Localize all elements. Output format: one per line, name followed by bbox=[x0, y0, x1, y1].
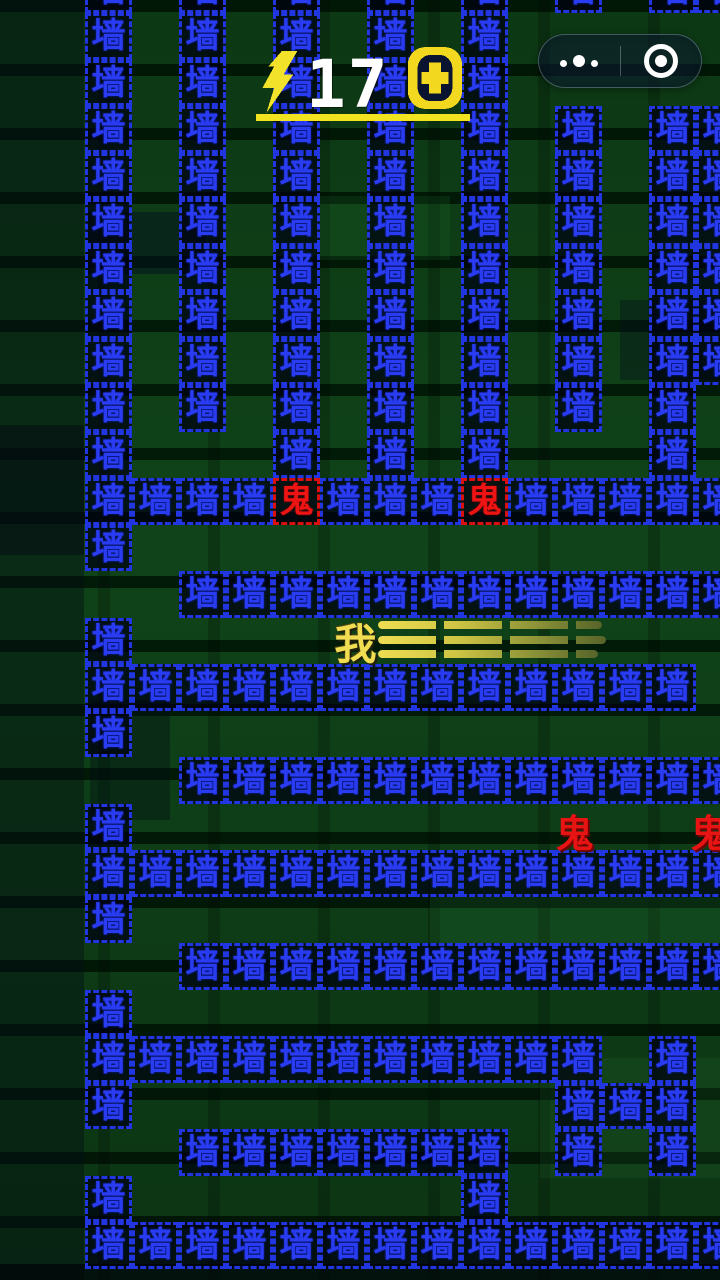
wall-cell: 墙 bbox=[367, 478, 414, 525]
wall-cell: 墙 bbox=[508, 478, 555, 525]
wall-cell: 墙 bbox=[85, 432, 132, 479]
wall-cell: 墙 bbox=[179, 60, 226, 107]
wall-cell: 墙 bbox=[602, 1222, 649, 1269]
wall-cell: 墙 bbox=[555, 0, 602, 13]
wall-cell: 墙 bbox=[273, 1036, 320, 1083]
menu-button[interactable] bbox=[539, 35, 620, 87]
wall-cell: 墙 bbox=[461, 199, 508, 246]
wall-cell: 墙 bbox=[414, 571, 461, 618]
wall-cell: 墙 bbox=[367, 850, 414, 897]
wall-cell: 墙 bbox=[696, 0, 720, 13]
wall-cell: 墙 bbox=[555, 246, 602, 293]
wall-cell: 墙 bbox=[85, 990, 132, 1037]
wall-cell: 墙 bbox=[320, 1129, 367, 1176]
wall-cell: 墙 bbox=[367, 153, 414, 200]
wall-cell: 墙 bbox=[461, 571, 508, 618]
wall-cell: 墙 bbox=[85, 339, 132, 386]
wall-cell: 墙 bbox=[367, 943, 414, 990]
wall-cell: 墙 bbox=[555, 1222, 602, 1269]
wall-cell: 墙 bbox=[273, 385, 320, 432]
wall-cell: 墙 bbox=[273, 571, 320, 618]
wall-cell: 墙 bbox=[85, 1036, 132, 1083]
wall-cell: 墙 bbox=[649, 1083, 696, 1130]
wall-cell: 墙 bbox=[367, 339, 414, 386]
wall-cell: 墙 bbox=[414, 478, 461, 525]
wall-cell: 墙 bbox=[179, 339, 226, 386]
wall-cell: 墙 bbox=[508, 850, 555, 897]
target-circle-icon bbox=[644, 44, 678, 78]
wall-cell: 墙 bbox=[461, 60, 508, 107]
wall-cell: 墙 bbox=[555, 199, 602, 246]
wall-cell: 墙 bbox=[414, 1129, 461, 1176]
wall-cell: 墙 bbox=[602, 478, 649, 525]
wall-cell: 墙 bbox=[226, 757, 273, 804]
wall-cell: 墙 bbox=[649, 0, 696, 13]
wall-cell: 墙 bbox=[273, 850, 320, 897]
wall-cell: 墙 bbox=[132, 1222, 179, 1269]
wall-cell: 墙 bbox=[696, 153, 720, 200]
wall-cell: 墙 bbox=[555, 153, 602, 200]
wall-cell: 墙 bbox=[555, 943, 602, 990]
coin-plus-icon bbox=[406, 45, 464, 111]
wall-cell: 墙 bbox=[649, 432, 696, 479]
wall-cell: 墙 bbox=[414, 757, 461, 804]
wall-cell: 墙 bbox=[85, 618, 132, 665]
wall-cell: 墙 bbox=[85, 60, 132, 107]
wall-cell: 墙 bbox=[226, 478, 273, 525]
wall-cell: 墙 bbox=[273, 943, 320, 990]
wall-cell: 墙 bbox=[649, 106, 696, 153]
wall-cell: 墙 bbox=[85, 13, 132, 60]
wall-cell: 墙 bbox=[273, 339, 320, 386]
wall-cell: 墙 bbox=[461, 106, 508, 153]
wall-cell: 墙 bbox=[85, 525, 132, 572]
wall-cell: 墙 bbox=[696, 339, 720, 386]
wall-cell: 墙 bbox=[85, 664, 132, 711]
speed-dash-line bbox=[378, 636, 606, 644]
wall-cell: 墙 bbox=[649, 478, 696, 525]
wall-cell: 墙 bbox=[696, 757, 720, 804]
wall-cell: 墙 bbox=[649, 1222, 696, 1269]
wall-cell: 墙 bbox=[461, 246, 508, 293]
wall-cell: 墙 bbox=[649, 339, 696, 386]
wall-cell: 墙 bbox=[508, 571, 555, 618]
wall-cell: 墙 bbox=[555, 1129, 602, 1176]
wall-cell: 墙 bbox=[461, 664, 508, 711]
wall-cell: 墙 bbox=[649, 1036, 696, 1083]
wall-cell: 墙 bbox=[602, 571, 649, 618]
wall-cell: 墙 bbox=[367, 385, 414, 432]
wall-cell: 墙 bbox=[649, 1129, 696, 1176]
wall-cell: 墙 bbox=[273, 1129, 320, 1176]
wall-cell: 墙 bbox=[555, 1036, 602, 1083]
wall-cell: 墙 bbox=[273, 246, 320, 293]
ghost: 鬼 bbox=[686, 803, 720, 858]
wall-cell: 墙 bbox=[367, 0, 414, 13]
wall-cell: 墙 bbox=[179, 13, 226, 60]
wall-cell: 墙 bbox=[602, 943, 649, 990]
speed-dash-line bbox=[378, 650, 598, 658]
wall-cell: 墙 bbox=[179, 943, 226, 990]
lightning-icon bbox=[256, 51, 300, 113]
wall-cell: 墙 bbox=[602, 1083, 649, 1130]
wall-cell: 墙 bbox=[85, 385, 132, 432]
wall-cell: 墙 bbox=[179, 571, 226, 618]
wall-cell: 墙 bbox=[132, 1036, 179, 1083]
wall-cell: 墙 bbox=[649, 292, 696, 339]
wall-cell: 墙 bbox=[602, 850, 649, 897]
wall-cell: 墙 bbox=[85, 711, 132, 758]
wall-cell: 墙 bbox=[85, 292, 132, 339]
wall-cell: 墙 bbox=[320, 1222, 367, 1269]
wall-cell: 墙 bbox=[85, 153, 132, 200]
wall-cell: 墙 bbox=[179, 246, 226, 293]
wall-cell: 墙 bbox=[414, 1036, 461, 1083]
wall-cell: 墙 bbox=[602, 664, 649, 711]
mini-program-capsule bbox=[538, 34, 702, 88]
wall-cell: 墙 bbox=[555, 106, 602, 153]
ghost-wall-cell: 鬼 bbox=[461, 478, 508, 525]
wall-cell: 墙 bbox=[555, 292, 602, 339]
wall-cell: 墙 bbox=[461, 292, 508, 339]
wall-cell: 墙 bbox=[461, 13, 508, 60]
wall-cell: 墙 bbox=[508, 1036, 555, 1083]
wall-cell: 墙 bbox=[696, 246, 720, 293]
wall-cell: 墙 bbox=[179, 757, 226, 804]
wall-cell: 墙 bbox=[226, 943, 273, 990]
wall-cell: 墙 bbox=[696, 1222, 720, 1269]
wall-cell: 墙 bbox=[132, 850, 179, 897]
wall-cell: 墙 bbox=[555, 664, 602, 711]
wall-cell: 墙 bbox=[461, 1129, 508, 1176]
wall-cell: 墙 bbox=[273, 292, 320, 339]
wall-cell: 墙 bbox=[508, 1222, 555, 1269]
wall-cell: 墙 bbox=[85, 199, 132, 246]
wall-cell: 墙 bbox=[508, 943, 555, 990]
wall-cell: 墙 bbox=[273, 1222, 320, 1269]
wall-cell: 墙 bbox=[320, 757, 367, 804]
wall-cell: 墙 bbox=[461, 1176, 508, 1223]
score-underline bbox=[256, 114, 470, 121]
wall-cell: 墙 bbox=[179, 1129, 226, 1176]
wall-cell: 墙 bbox=[85, 1083, 132, 1130]
wall-cell: 墙 bbox=[649, 664, 696, 711]
wall-cell: 墙 bbox=[649, 943, 696, 990]
maze-field[interactable]: 墙墙墙墙墙墙墙墙墙墙墙墙墙墙墙墙墙墙墙墙墙墙墙墙墙墙墙墙墙墙墙墙墙墙墙墙墙墙墙墙… bbox=[0, 0, 720, 1280]
wall-cell: 墙 bbox=[273, 0, 320, 13]
wall-cell: 墙 bbox=[414, 664, 461, 711]
wall-cell: 墙 bbox=[602, 757, 649, 804]
wall-cell: 墙 bbox=[226, 1129, 273, 1176]
wall-cell: 墙 bbox=[461, 0, 508, 13]
wall-cell: 墙 bbox=[461, 432, 508, 479]
wall-cell: 墙 bbox=[461, 339, 508, 386]
score-value: 17 bbox=[306, 46, 410, 123]
wall-cell: 墙 bbox=[555, 339, 602, 386]
wall-cell: 墙 bbox=[461, 943, 508, 990]
wall-cell: 墙 bbox=[461, 757, 508, 804]
wall-cell: 墙 bbox=[179, 0, 226, 13]
wall-cell: 墙 bbox=[179, 385, 226, 432]
wall-cell: 墙 bbox=[367, 1129, 414, 1176]
wall-cell: 墙 bbox=[461, 385, 508, 432]
wall-cell: 墙 bbox=[414, 1222, 461, 1269]
wall-cell: 墙 bbox=[179, 850, 226, 897]
wall-cell: 墙 bbox=[273, 432, 320, 479]
wall-cell: 墙 bbox=[696, 199, 720, 246]
wall-cell: 墙 bbox=[461, 153, 508, 200]
wall-cell: 墙 bbox=[320, 943, 367, 990]
wall-cell: 墙 bbox=[461, 1222, 508, 1269]
wall-cell: 墙 bbox=[179, 1036, 226, 1083]
wall-cell: 墙 bbox=[226, 1036, 273, 1083]
wall-cell: 墙 bbox=[85, 1176, 132, 1223]
wall-cell: 墙 bbox=[367, 432, 414, 479]
wall-cell: 墙 bbox=[555, 1083, 602, 1130]
wall-cell: 墙 bbox=[696, 943, 720, 990]
wall-cell: 墙 bbox=[226, 571, 273, 618]
wall-cell: 墙 bbox=[179, 478, 226, 525]
wall-cell: 墙 bbox=[367, 246, 414, 293]
wall-cell: 墙 bbox=[555, 385, 602, 432]
wall-cell: 墙 bbox=[132, 478, 179, 525]
wall-cell: 墙 bbox=[85, 897, 132, 944]
wall-cell: 墙 bbox=[696, 292, 720, 339]
wall-cell: 墙 bbox=[649, 199, 696, 246]
wall-cell: 墙 bbox=[132, 664, 179, 711]
wall-cell: 墙 bbox=[179, 1222, 226, 1269]
wall-cell: 墙 bbox=[696, 478, 720, 525]
wall-cell: 墙 bbox=[273, 757, 320, 804]
wall-cell: 墙 bbox=[273, 664, 320, 711]
wall-cell: 墙 bbox=[555, 757, 602, 804]
wall-cell: 墙 bbox=[320, 850, 367, 897]
wall-cell: 墙 bbox=[649, 385, 696, 432]
wall-cell: 墙 bbox=[226, 664, 273, 711]
wall-cell: 墙 bbox=[85, 246, 132, 293]
wall-cell: 墙 bbox=[85, 804, 132, 851]
wall-cell: 墙 bbox=[696, 571, 720, 618]
wall-cell: 墙 bbox=[367, 292, 414, 339]
wall-cell: 墙 bbox=[649, 153, 696, 200]
wall-cell: 墙 bbox=[226, 850, 273, 897]
wall-cell: 墙 bbox=[85, 0, 132, 13]
wall-cell: 墙 bbox=[226, 1222, 273, 1269]
player-character: 我 bbox=[332, 611, 379, 672]
wall-cell: 墙 bbox=[367, 757, 414, 804]
wall-cell: 墙 bbox=[179, 153, 226, 200]
wall-cell: 墙 bbox=[320, 478, 367, 525]
wall-cell: 墙 bbox=[508, 757, 555, 804]
wall-cell: 墙 bbox=[85, 106, 132, 153]
wall-cell: 墙 bbox=[179, 664, 226, 711]
wall-cell: 墙 bbox=[461, 850, 508, 897]
wall-cell: 墙 bbox=[179, 106, 226, 153]
wall-cell: 墙 bbox=[649, 757, 696, 804]
wall-cell: 墙 bbox=[367, 1222, 414, 1269]
wall-cell: 墙 bbox=[649, 246, 696, 293]
wall-cell: 墙 bbox=[85, 1222, 132, 1269]
wall-cell: 墙 bbox=[696, 106, 720, 153]
wall-cell: 墙 bbox=[179, 292, 226, 339]
wall-cell: 墙 bbox=[273, 199, 320, 246]
wall-cell: 墙 bbox=[555, 571, 602, 618]
wall-cell: 墙 bbox=[367, 1036, 414, 1083]
wall-cell: 墙 bbox=[414, 850, 461, 897]
wall-cell: 墙 bbox=[85, 850, 132, 897]
wall-cell: 墙 bbox=[179, 199, 226, 246]
ghost-wall-cell: 鬼 bbox=[273, 478, 320, 525]
more-dots-icon bbox=[557, 52, 601, 71]
wall-cell: 墙 bbox=[555, 478, 602, 525]
wall-cell: 墙 bbox=[367, 199, 414, 246]
wall-cell: 墙 bbox=[273, 153, 320, 200]
home-button[interactable] bbox=[621, 35, 702, 87]
wall-cell: 墙 bbox=[414, 943, 461, 990]
game-screen: 墙墙墙墙墙墙墙墙墙墙墙墙墙墙墙墙墙墙墙墙墙墙墙墙墙墙墙墙墙墙墙墙墙墙墙墙墙墙墙墙… bbox=[0, 0, 720, 1280]
wall-cell: 墙 bbox=[461, 1036, 508, 1083]
wall-cell: 墙 bbox=[320, 1036, 367, 1083]
ghost: 鬼 bbox=[551, 803, 598, 858]
wall-cell: 墙 bbox=[508, 664, 555, 711]
wall-cell: 墙 bbox=[85, 478, 132, 525]
speed-dash-line bbox=[378, 621, 602, 629]
wall-cell: 墙 bbox=[649, 571, 696, 618]
